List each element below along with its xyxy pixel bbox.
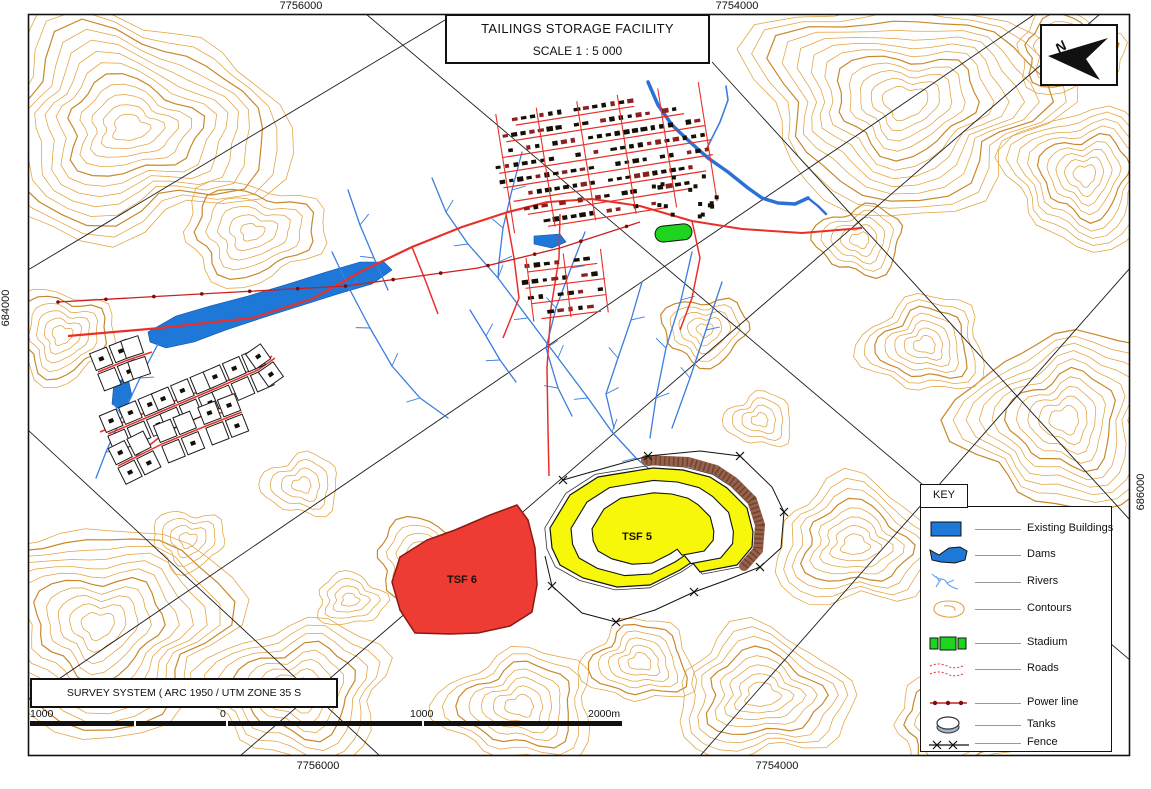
scale-bar-rule (30, 721, 622, 726)
scale-bar-label: 0 (220, 708, 226, 720)
key-item-label: Contours (1027, 602, 1072, 614)
power-line-layer (56, 222, 640, 304)
grid-label-top-left: 7756000 (256, 0, 346, 12)
key-connector-line (975, 725, 1021, 726)
tsf5-label: TSF 5 (622, 531, 652, 543)
power-line-icon (927, 692, 971, 714)
key-connector-line (975, 609, 1021, 610)
title-box: TAILINGS STORAGE FACILITY SCALE 1 : 5 00… (445, 14, 710, 64)
scale-bar-divider (134, 721, 136, 726)
roads-icon (927, 658, 971, 680)
tsf6-label: TSF 6 (447, 574, 477, 586)
map-scale-text: SCALE 1 : 5 000 (447, 44, 708, 58)
key-connector-line (975, 555, 1021, 556)
key-legend: Existing Buildings Dams Rivers Contours … (920, 506, 1112, 752)
key-item-rivers: Rivers (921, 571, 1111, 593)
key-title: KEY (920, 484, 968, 508)
key-item-label: Existing Buildings (1027, 522, 1113, 534)
key-item-contours: Contours (921, 598, 1111, 620)
contours-icon (927, 598, 971, 620)
key-item-label: Fence (1027, 736, 1058, 748)
key-item-label: Rivers (1027, 575, 1058, 587)
key-item-label: Dams (1027, 548, 1056, 560)
key-connector-line (975, 529, 1021, 530)
scale-bar-label: 1000 (30, 708, 53, 720)
grid-label-bottom-right: 7754000 (732, 760, 822, 772)
grid-label-right: 686000 (1135, 456, 1147, 528)
key-item-label: Roads (1027, 662, 1059, 674)
key-item-power-line: Power line (921, 692, 1111, 714)
key-connector-line (975, 743, 1021, 744)
stadium-icon (927, 632, 971, 654)
key-item-stadium: Stadium (921, 632, 1111, 654)
rivers-icon (927, 571, 971, 593)
grid-label-left: 684000 (0, 272, 12, 344)
north-arrow-box: N (1040, 24, 1118, 86)
key-item-label: Stadium (1027, 636, 1067, 648)
key-item-label: Tanks (1027, 718, 1056, 730)
scale-bar: 1000 0 1000 2000m (30, 708, 624, 728)
map-sheet: 7756000 7754000 7756000 7754000 684000 6… (0, 0, 1151, 789)
key-connector-line (975, 582, 1021, 583)
scale-bar-label: 2000m (588, 708, 620, 720)
tsf5-group (545, 460, 760, 590)
key-item-label: Power line (1027, 696, 1078, 708)
fence-icon (927, 732, 971, 754)
scale-bar-divider (226, 721, 228, 726)
grid-label-top-right: 7754000 (692, 0, 782, 12)
survey-system-box: SURVEY SYSTEM ( ARC 1950 / UTM ZONE 35 S (30, 678, 338, 708)
towns-layer (495, 82, 718, 322)
scale-bar-divider (422, 721, 424, 726)
tsf6-polygon (392, 505, 537, 634)
key-connector-line (975, 703, 1021, 704)
village-layer (90, 336, 284, 485)
key-connector-line (975, 643, 1021, 644)
grid-label-bottom-left: 7756000 (273, 760, 363, 772)
dams-icon (927, 544, 971, 566)
key-item-roads: Roads (921, 658, 1111, 680)
existing-buildings-icon (927, 518, 971, 540)
key-item-existing-buildings: Existing Buildings (921, 518, 1111, 540)
key-item-dams: Dams (921, 544, 1111, 566)
key-item-fence: Fence (921, 732, 1111, 754)
map-title: TAILINGS STORAGE FACILITY (447, 21, 708, 36)
scale-bar-label: 1000 (410, 708, 433, 720)
north-arrow-icon: N (1042, 26, 1116, 84)
stadium-shape (654, 223, 692, 243)
key-connector-line (975, 669, 1021, 670)
